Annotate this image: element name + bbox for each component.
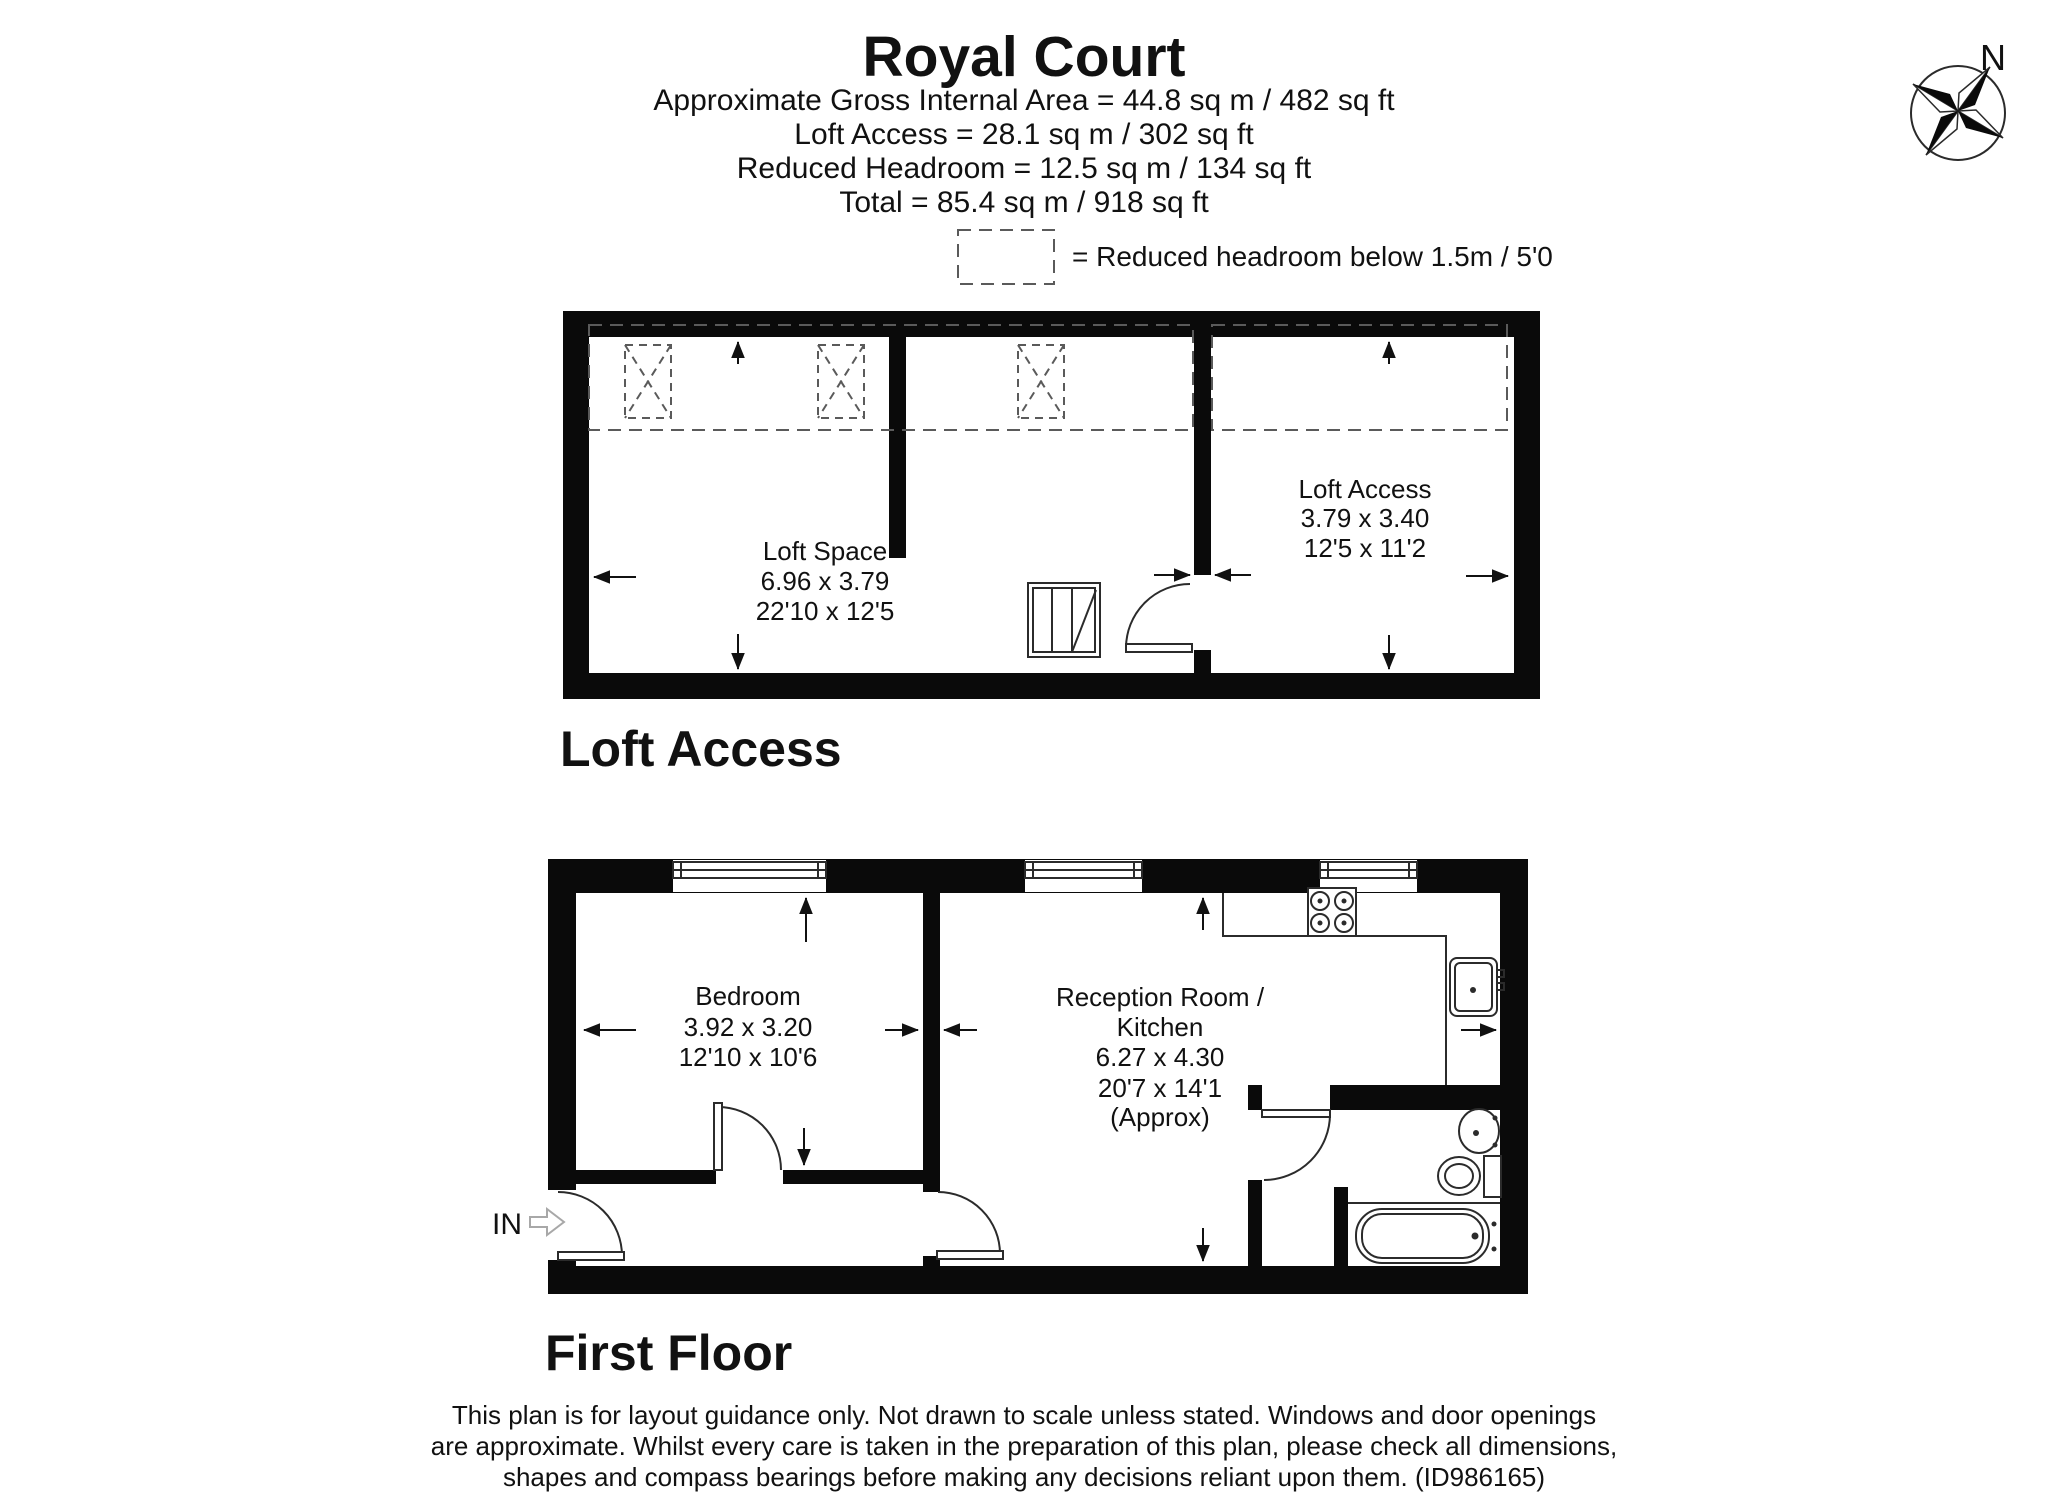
toilet-icon	[1438, 1156, 1501, 1197]
roof-window-icon	[818, 345, 864, 418]
bathroom-door	[1262, 1110, 1330, 1180]
window-icon	[673, 860, 826, 892]
reduced-headroom-zones	[589, 325, 1507, 430]
entrance-door	[558, 1192, 624, 1260]
floorplan-canvas: N	[0, 0, 2048, 1490]
bedroom-hall-wall	[548, 1170, 716, 1184]
legend-reduced-headroom-swatch	[958, 230, 1054, 284]
room-name: Loft Space	[763, 536, 887, 566]
window-icon	[1025, 860, 1142, 892]
bathroom-top-wall	[1248, 1085, 1262, 1110]
bathroom	[1348, 1109, 1501, 1263]
bedroom-door	[714, 1103, 781, 1170]
staircase-icon	[1028, 583, 1100, 657]
loft-divider-wall	[889, 337, 906, 558]
compass-north-label: N	[1980, 37, 2006, 78]
basin-icon	[1459, 1109, 1499, 1153]
hob-icon	[1308, 888, 1356, 936]
room-dim-metric: 6.96 x 3.79	[761, 566, 890, 596]
room-dim-metric: 6.27 x 4.30	[1096, 1042, 1225, 1072]
loft-access-room-label: Loft Access 3.79 x 3.40 12'5 x 11'2	[1299, 474, 1432, 563]
room-name-line2: Kitchen	[1117, 1012, 1204, 1042]
room-name: Bedroom	[695, 981, 801, 1011]
room-name: Loft Access	[1299, 474, 1432, 504]
sink-icon	[1450, 958, 1504, 1016]
loft-space-room-label: Loft Space 6.96 x 3.79 22'10 x 12'5	[756, 536, 895, 626]
roof-window-icon	[1018, 345, 1064, 418]
loft-access-wall	[1194, 337, 1211, 575]
bath-partition-wall	[1334, 1187, 1348, 1268]
room-dim-imperial: 12'10 x 10'6	[679, 1042, 818, 1072]
room-dim-imperial: 20'7 x 14'1	[1098, 1073, 1222, 1103]
bedroom-reception-wall	[923, 875, 940, 1192]
bathroom-left-wall	[1248, 1180, 1262, 1268]
loft-door-stub	[1194, 650, 1211, 673]
room-name-line1: Reception Room /	[1056, 982, 1265, 1012]
room-dim-imperial: 22'10 x 12'5	[756, 596, 895, 626]
bedroom-room-label: Bedroom 3.92 x 3.20 12'10 x 10'6	[679, 981, 818, 1072]
room-dim-imperial: 12'5 x 11'2	[1304, 533, 1426, 563]
room-dim-qualifier: (Approx)	[1110, 1102, 1210, 1132]
first-floor-dimension-arrows	[584, 898, 1496, 1261]
loft-door	[1126, 584, 1192, 652]
room-dim-metric: 3.92 x 3.20	[684, 1012, 813, 1042]
reception-door	[937, 1192, 1003, 1259]
loft-plan: Loft Space 6.96 x 3.79 22'10 x 12'5 Loft…	[563, 311, 1540, 699]
first-floor-plan: IN Bedroom 3.92 x 3.20 12'10 x 10'6 Rece…	[492, 859, 1528, 1294]
bathtub-icon	[1356, 1209, 1497, 1263]
room-dim-metric: 3.79 x 3.40	[1301, 503, 1430, 533]
entrance-in-label: IN	[492, 1208, 522, 1241]
roof-window-icon	[625, 345, 671, 418]
entrance-arrow-icon	[530, 1209, 564, 1235]
reception-room-label: Reception Room / Kitchen 6.27 x 4.30 20'…	[1056, 982, 1265, 1132]
compass-icon: N	[1911, 37, 2006, 160]
entrance-marker: IN	[492, 1208, 564, 1241]
